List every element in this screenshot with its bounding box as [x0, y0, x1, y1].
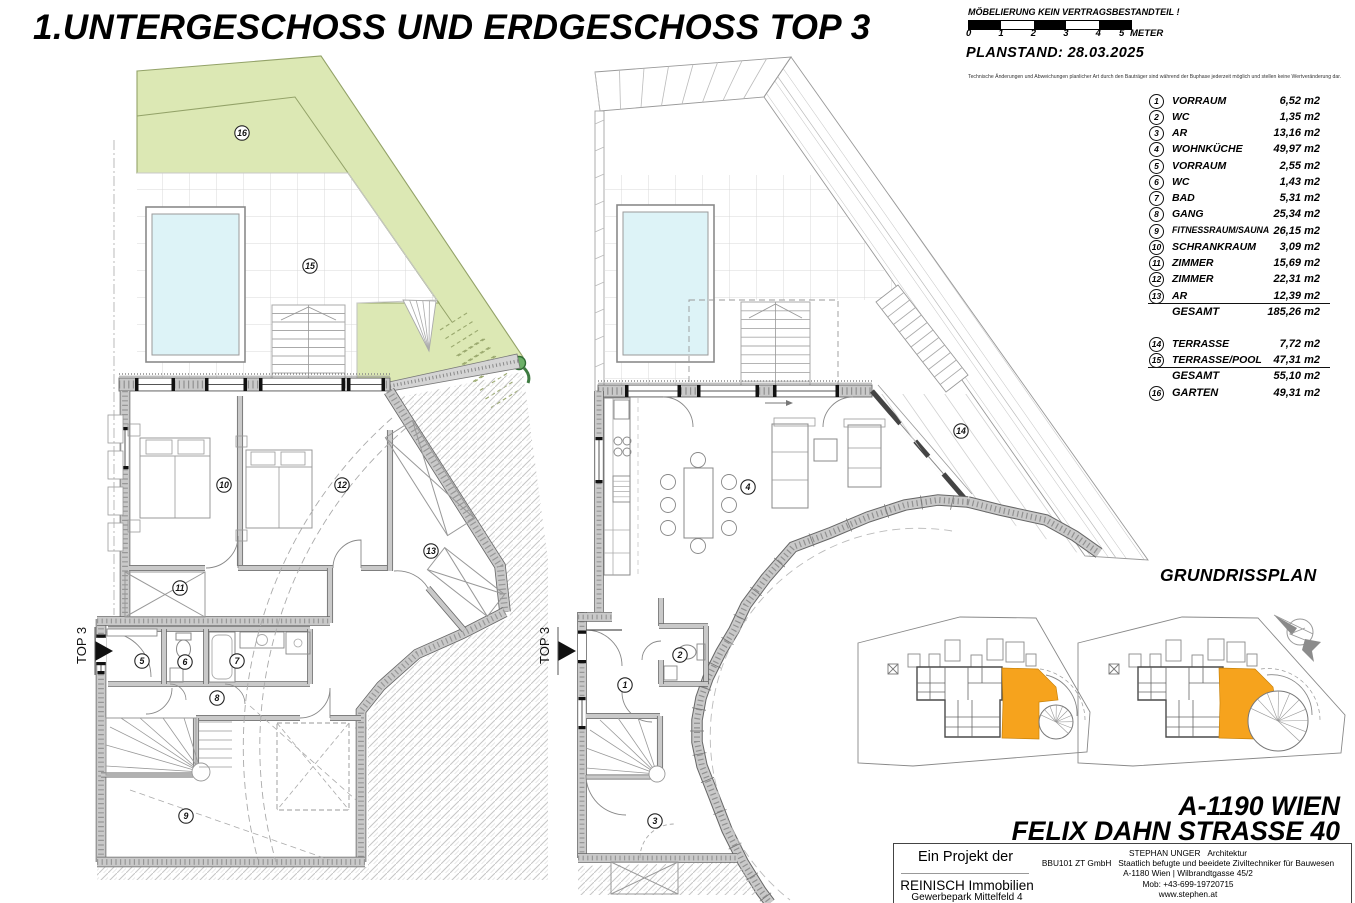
svg-text:8: 8: [215, 693, 220, 703]
svg-text:6: 6: [183, 657, 188, 667]
svg-text:15: 15: [305, 261, 315, 271]
svg-text:10: 10: [219, 480, 229, 490]
svg-text:12: 12: [337, 480, 347, 490]
svg-text:5: 5: [140, 656, 145, 666]
svg-text:1: 1: [623, 680, 628, 690]
svg-text:9: 9: [184, 811, 189, 821]
svg-text:14: 14: [956, 426, 966, 436]
svg-text:2: 2: [677, 650, 683, 660]
svg-text:13: 13: [426, 546, 436, 556]
svg-text:16: 16: [237, 128, 247, 138]
svg-text:3: 3: [653, 816, 658, 826]
svg-text:11: 11: [175, 583, 184, 593]
svg-text:4: 4: [745, 482, 751, 492]
svg-text:TOP 3: TOP 3: [74, 627, 89, 664]
svg-text:TOP 3: TOP 3: [537, 627, 552, 664]
